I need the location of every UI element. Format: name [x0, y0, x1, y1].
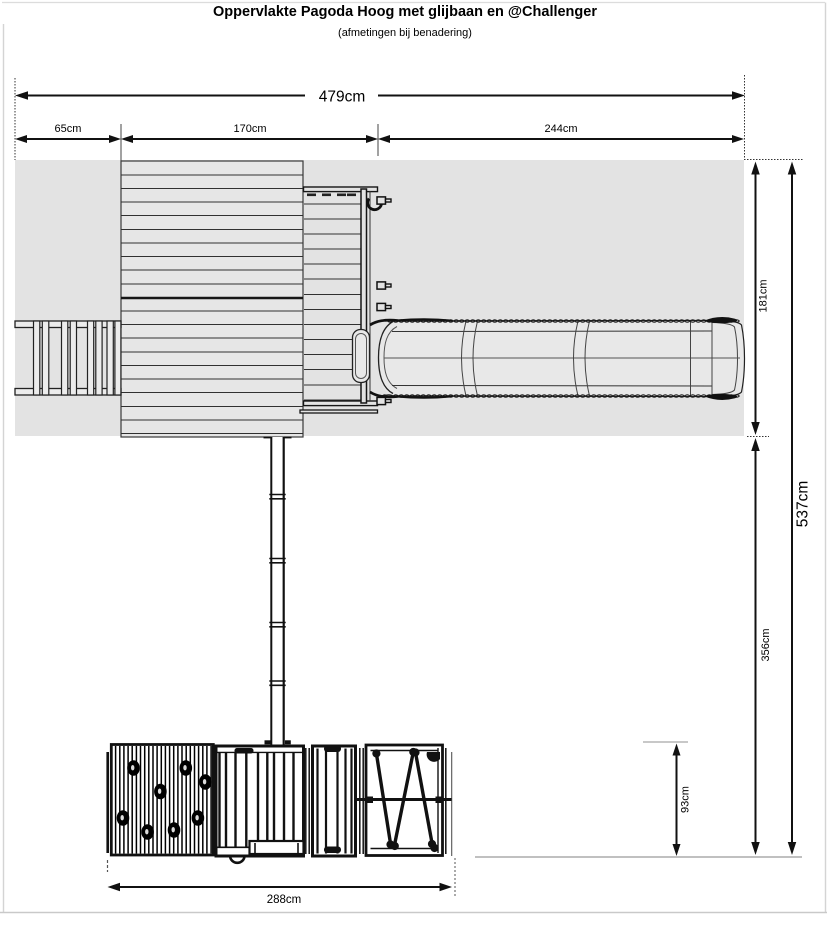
svg-text:356cm: 356cm — [760, 628, 772, 661]
svg-text:288cm: 288cm — [267, 894, 302, 906]
svg-text:181cm: 181cm — [758, 279, 770, 312]
svg-text:170cm: 170cm — [233, 123, 266, 135]
svg-text:65cm: 65cm — [55, 123, 82, 135]
svg-text:Oppervlakte Pagoda Hoog met gl: Oppervlakte Pagoda Hoog met glijbaan en … — [213, 4, 597, 20]
svg-text:(afmetingen bij benadering): (afmetingen bij benadering) — [338, 27, 472, 39]
svg-text:537cm: 537cm — [795, 481, 812, 528]
svg-text:93cm: 93cm — [680, 786, 692, 813]
svg-text:244cm: 244cm — [544, 123, 577, 135]
svg-text:479cm: 479cm — [319, 89, 366, 106]
